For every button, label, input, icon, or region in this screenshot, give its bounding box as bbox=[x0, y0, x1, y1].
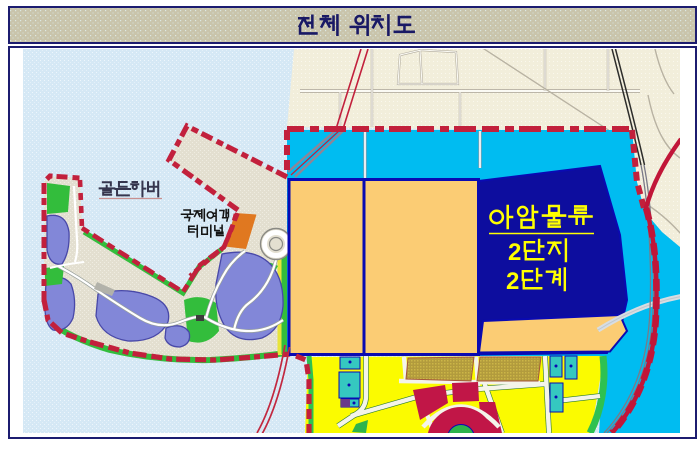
svg-text:2: 2 bbox=[506, 268, 519, 295]
svg-text:2: 2 bbox=[508, 239, 521, 266]
